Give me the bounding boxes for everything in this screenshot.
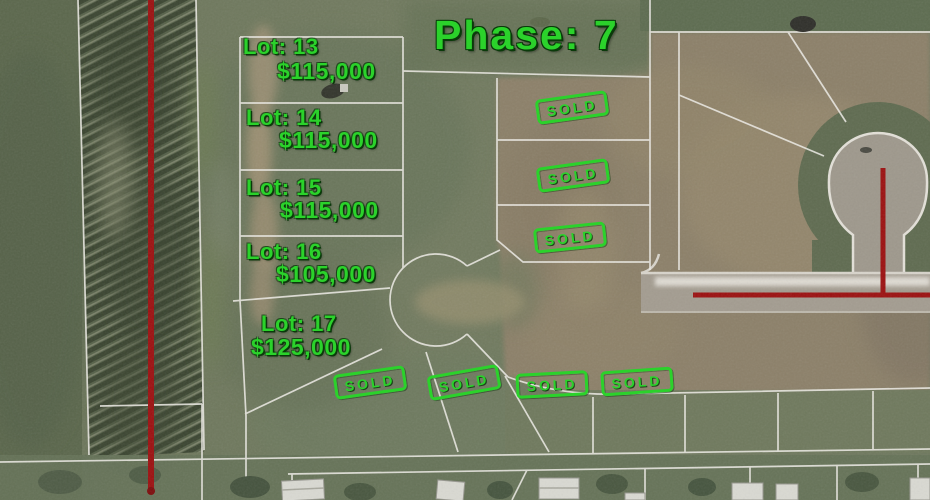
aerial-basemap — [0, 0, 930, 500]
phase-map: Phase: 7 Lot: 13 $115,000 Lot: 14 $115,0… — [0, 0, 930, 500]
photo-grain — [0, 0, 930, 500]
